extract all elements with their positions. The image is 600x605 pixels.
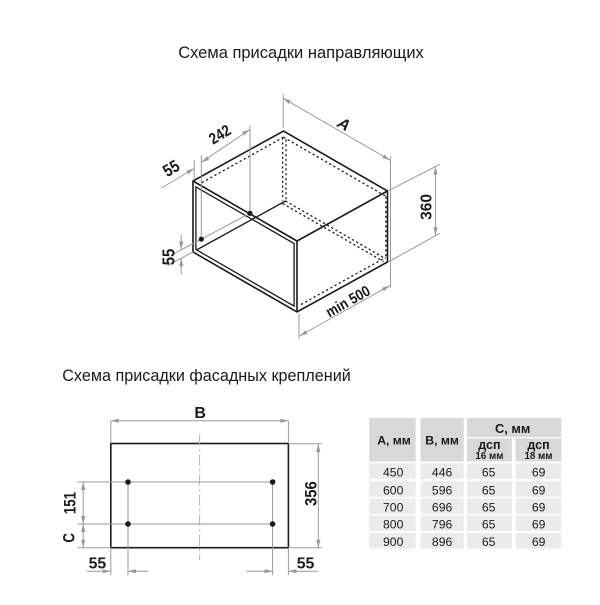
svg-text:С, мм: С, мм	[495, 421, 530, 436]
svg-text:Схема присадки направляющих: Схема присадки направляющих	[178, 44, 424, 62]
svg-text:69: 69	[532, 466, 546, 480]
svg-text:дсп: дсп	[527, 438, 549, 452]
svg-text:Схема присадки фасадных крепле: Схема присадки фасадных креплений	[62, 367, 351, 385]
svg-text:55: 55	[159, 249, 178, 266]
svg-text:796: 796	[432, 518, 453, 532]
svg-text:696: 696	[432, 501, 453, 515]
svg-text:65: 65	[482, 501, 496, 515]
svg-text:69: 69	[532, 501, 546, 515]
svg-text:800: 800	[383, 518, 404, 532]
svg-text:446: 446	[432, 466, 453, 480]
svg-text:69: 69	[532, 535, 546, 549]
svg-text:16 мм: 16 мм	[475, 451, 503, 462]
svg-text:B: B	[194, 405, 206, 422]
svg-text:В, мм: В, мм	[425, 433, 459, 447]
svg-text:356: 356	[303, 481, 321, 506]
svg-text:700: 700	[383, 501, 404, 515]
svg-text:242: 242	[206, 122, 234, 148]
svg-text:A: A	[333, 114, 352, 135]
svg-text:450: 450	[383, 466, 404, 480]
svg-text:65: 65	[482, 483, 496, 497]
svg-text:360: 360	[418, 194, 435, 220]
svg-text:65: 65	[482, 535, 496, 549]
svg-text:900: 900	[383, 535, 404, 549]
svg-text:65: 65	[482, 466, 496, 480]
svg-text:дсп: дсп	[478, 438, 500, 452]
svg-text:65: 65	[482, 518, 496, 532]
svg-text:55: 55	[297, 556, 315, 573]
svg-text:18 мм: 18 мм	[524, 451, 552, 462]
svg-text:896: 896	[432, 535, 453, 549]
svg-text:69: 69	[532, 483, 546, 497]
svg-text:596: 596	[432, 483, 453, 497]
svg-text:69: 69	[532, 518, 546, 532]
svg-text:151: 151	[61, 492, 80, 514]
svg-text:55: 55	[89, 556, 107, 573]
svg-text:600: 600	[383, 483, 404, 497]
svg-text:C: C	[60, 533, 79, 543]
svg-text:А, мм: А, мм	[377, 433, 411, 447]
